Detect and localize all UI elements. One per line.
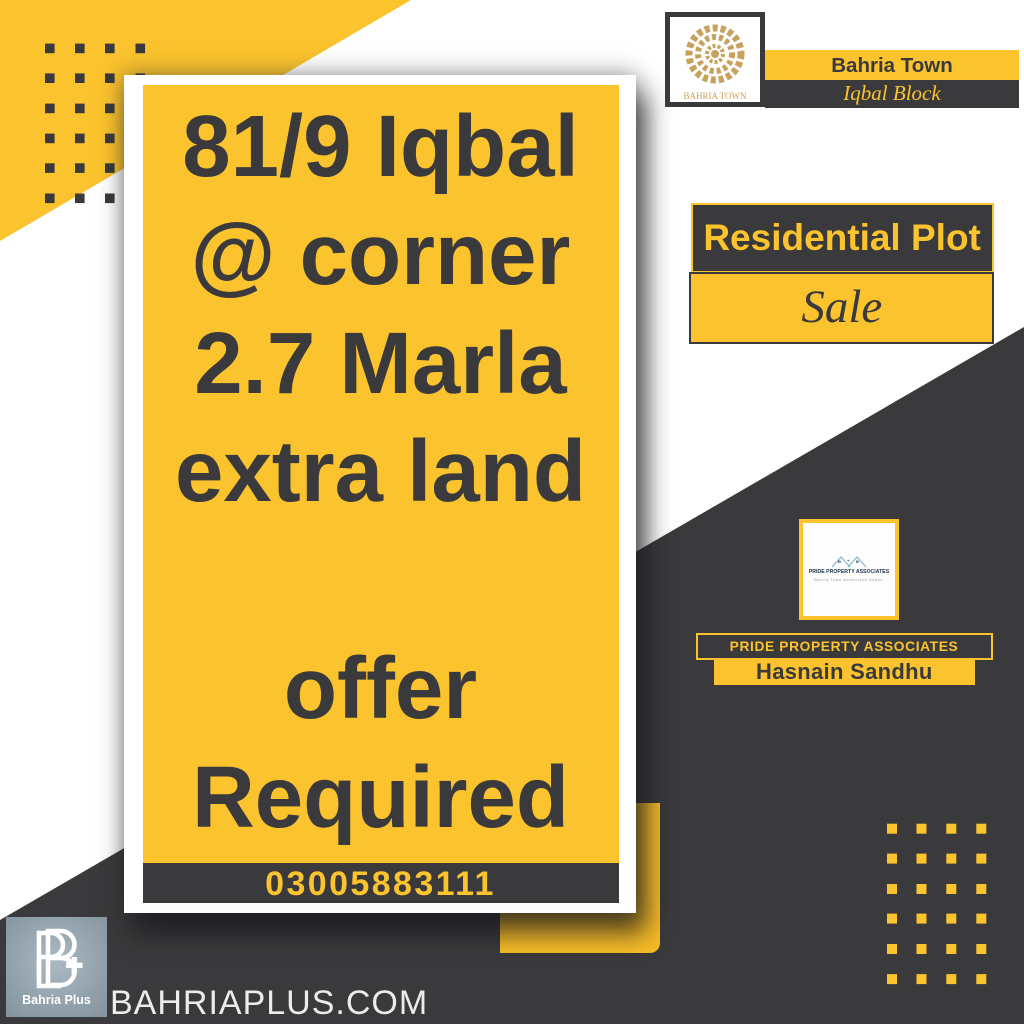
- svg-text:B: B: [856, 559, 859, 564]
- svg-text:+: +: [847, 558, 850, 563]
- svg-text:B: B: [838, 559, 841, 564]
